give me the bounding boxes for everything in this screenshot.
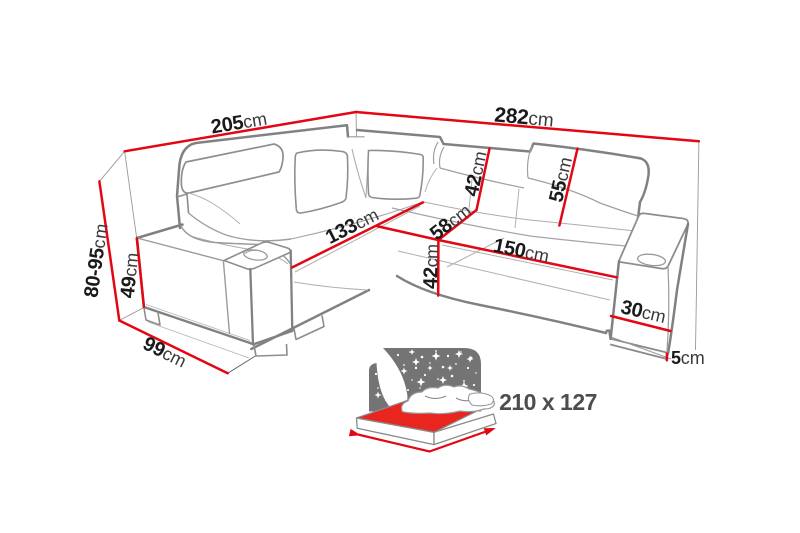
svg-text:58cm: 58cm [426,200,476,245]
svg-text:282cm: 282cm [493,103,554,131]
svg-text:210 x 127: 210 x 127 [499,389,597,415]
svg-text:99cm: 99cm [139,333,190,373]
svg-text:42cm: 42cm [461,149,492,198]
svg-text:80-95cm: 80-95cm [80,221,112,299]
svg-text:42cm: 42cm [420,244,444,289]
svg-text:5cm: 5cm [671,348,705,368]
svg-text:55cm: 55cm [545,155,577,204]
svg-text:49cm: 49cm [117,252,144,300]
svg-text:205cm: 205cm [209,108,268,139]
svg-text:150cm: 150cm [491,235,551,268]
